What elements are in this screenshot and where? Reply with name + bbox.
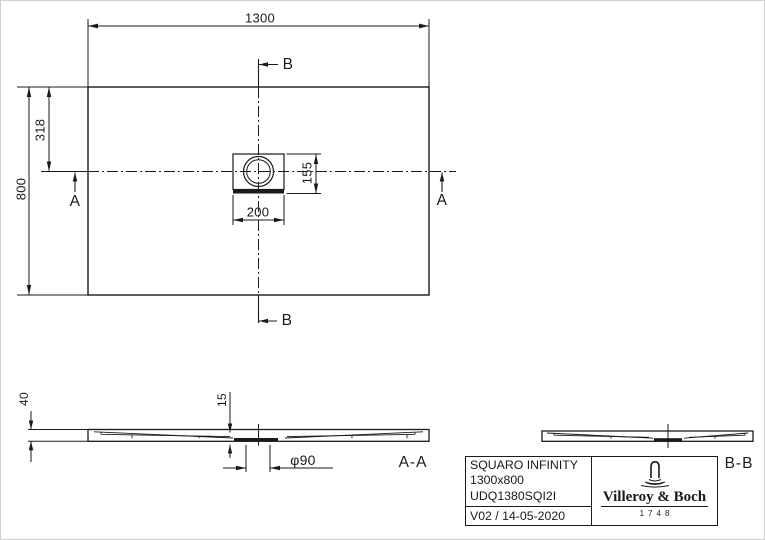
technical-drawing-sheet: 1300 800 318 155 200 B B A A 40 15 φ90 A… [0,0,765,540]
drain-offset-dim-label: 318 [33,119,48,142]
section-marker-a-left: A [70,193,81,211]
recess-depth-dim-label: 15 [215,393,229,407]
product-name: SQUARO INFINITY [470,458,587,473]
section-marker-a-right: A [437,192,448,210]
section-bb-title: B-B [725,455,754,473]
section-marker-b-bottom: B [282,312,293,330]
section-aa-title: A-A [399,454,428,472]
title-block: SQUARO INFINITY 1300x800 UDQ1380SQI2I V0… [465,456,718,526]
product-size: 1300x800 [470,473,587,488]
revision-date: V02 / 14-05-2020 [466,506,591,525]
drain-box-height-dim-label: 155 [300,162,315,185]
section-marker-b-top: B [283,56,294,74]
brand-cell: Villeroy & Boch 1748 [592,457,717,525]
plan-height-dim-label: 800 [14,178,29,201]
drain-box-width-dim-label: 200 [247,205,270,220]
tray-height-dim-label: 40 [17,392,31,406]
villeroy-boch-tap-icon [635,459,675,489]
plan-width-dim-label: 1300 [245,11,275,26]
title-block-info-cell: SQUARO INFINITY 1300x800 UDQ1380SQI2I V0… [466,457,592,525]
article-number: UDQ1380SQI2I [470,489,587,504]
brand-founded-year: 1748 [636,509,674,518]
brand-wordmark: Villeroy & Boch [601,490,708,507]
drain-diameter-dim-label: φ90 [290,452,316,468]
